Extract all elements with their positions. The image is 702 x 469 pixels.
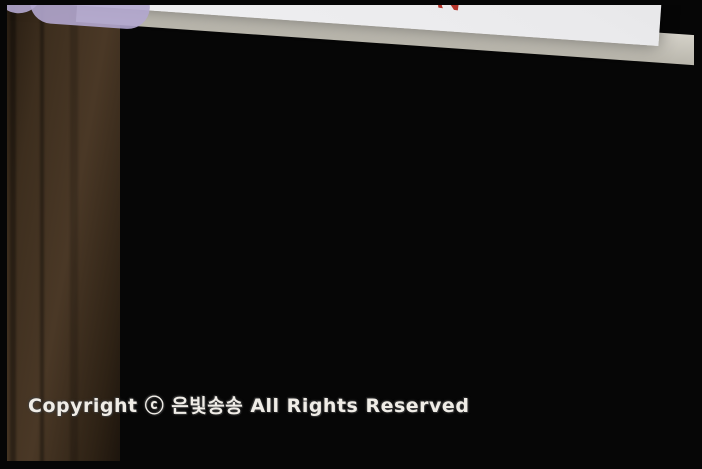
photo-of-workbook: ㅅ ㅅ ㅅ ㅅ ♛ Step 3 [0,0,702,469]
photo-frame-bottom [0,461,702,469]
watermark: Copyright ⓒ 은빛송송 All Rights Reserved [28,391,469,418]
photo-frame-top [0,0,702,5]
photo-frame-right [694,0,702,469]
wood-grain [10,0,16,469]
photo-frame-left [0,0,7,469]
